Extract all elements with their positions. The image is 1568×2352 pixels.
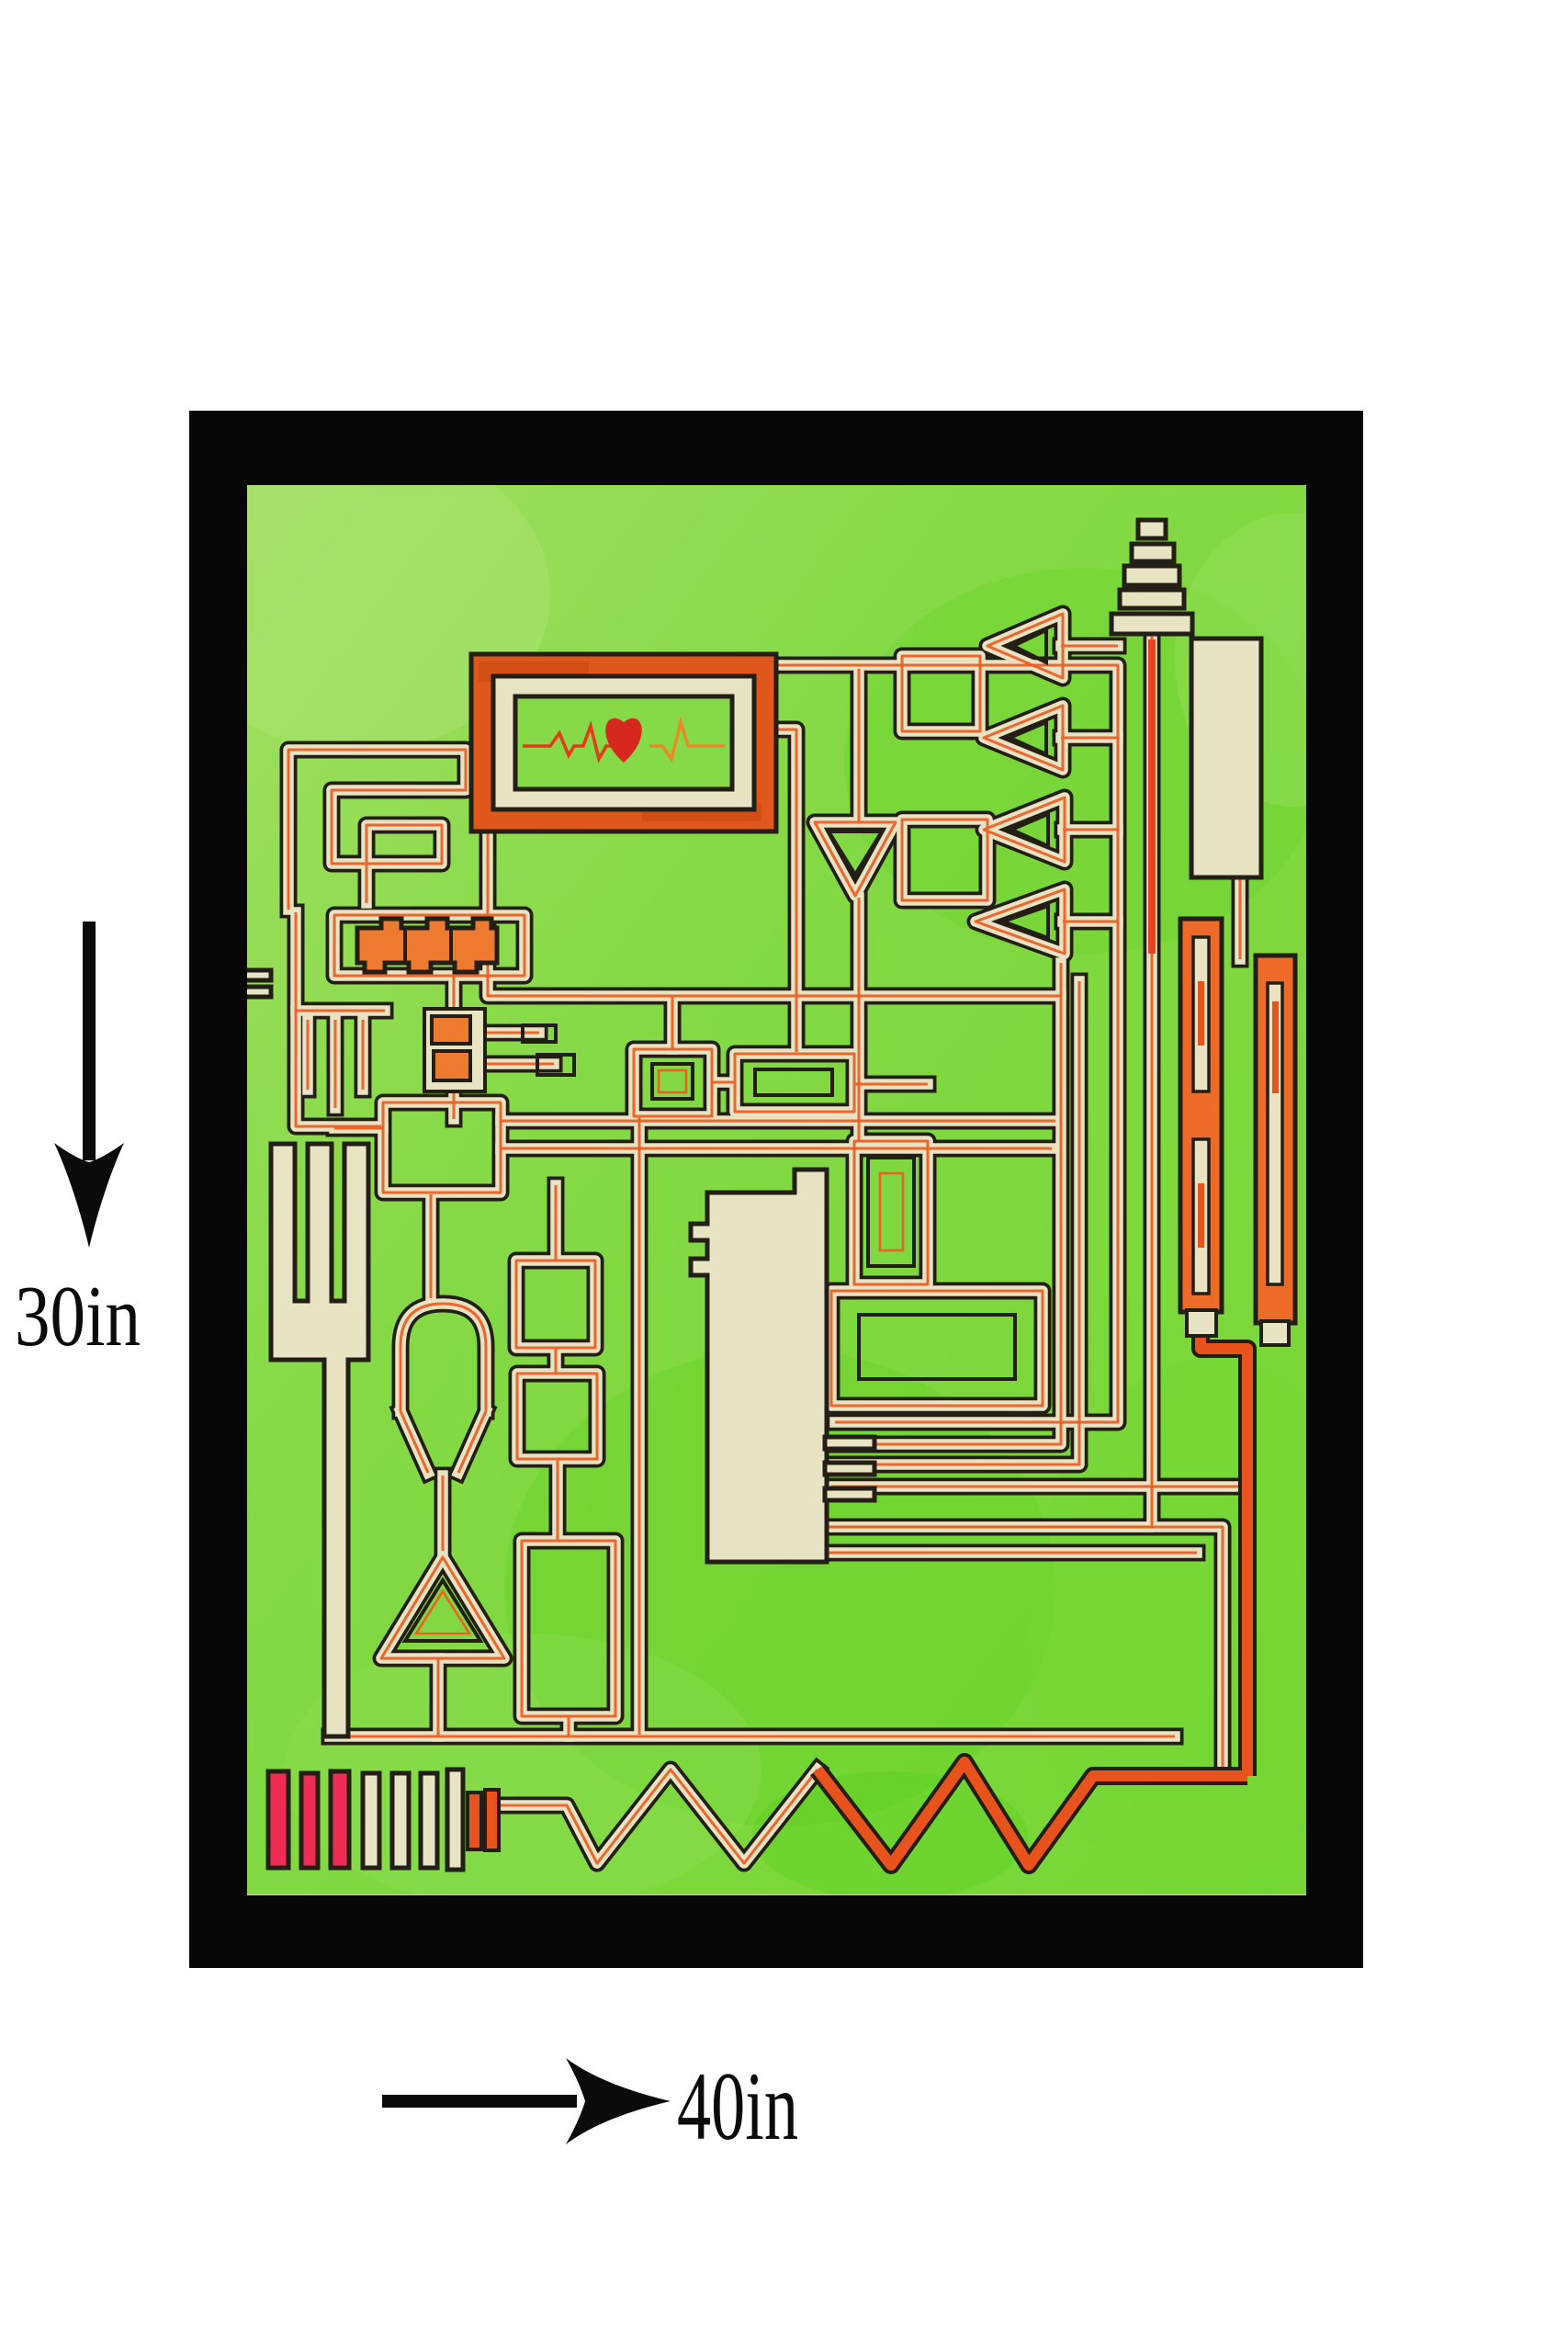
painting-canvas	[247, 485, 1306, 1894]
width-dimension-label: 40in	[677, 2058, 798, 2155]
orange-chip	[357, 919, 497, 972]
product-photo: 30in 40in	[0, 0, 1568, 2352]
height-dimension-label: 30in	[15, 1273, 141, 1360]
tall-cream-rect	[1191, 639, 1261, 877]
down-arrow-icon	[54, 922, 124, 1248]
picture-frame	[189, 411, 1363, 1968]
right-arrow-icon	[382, 2058, 671, 2144]
circuit-painting	[247, 485, 1306, 1894]
heart-monitor	[471, 654, 776, 831]
